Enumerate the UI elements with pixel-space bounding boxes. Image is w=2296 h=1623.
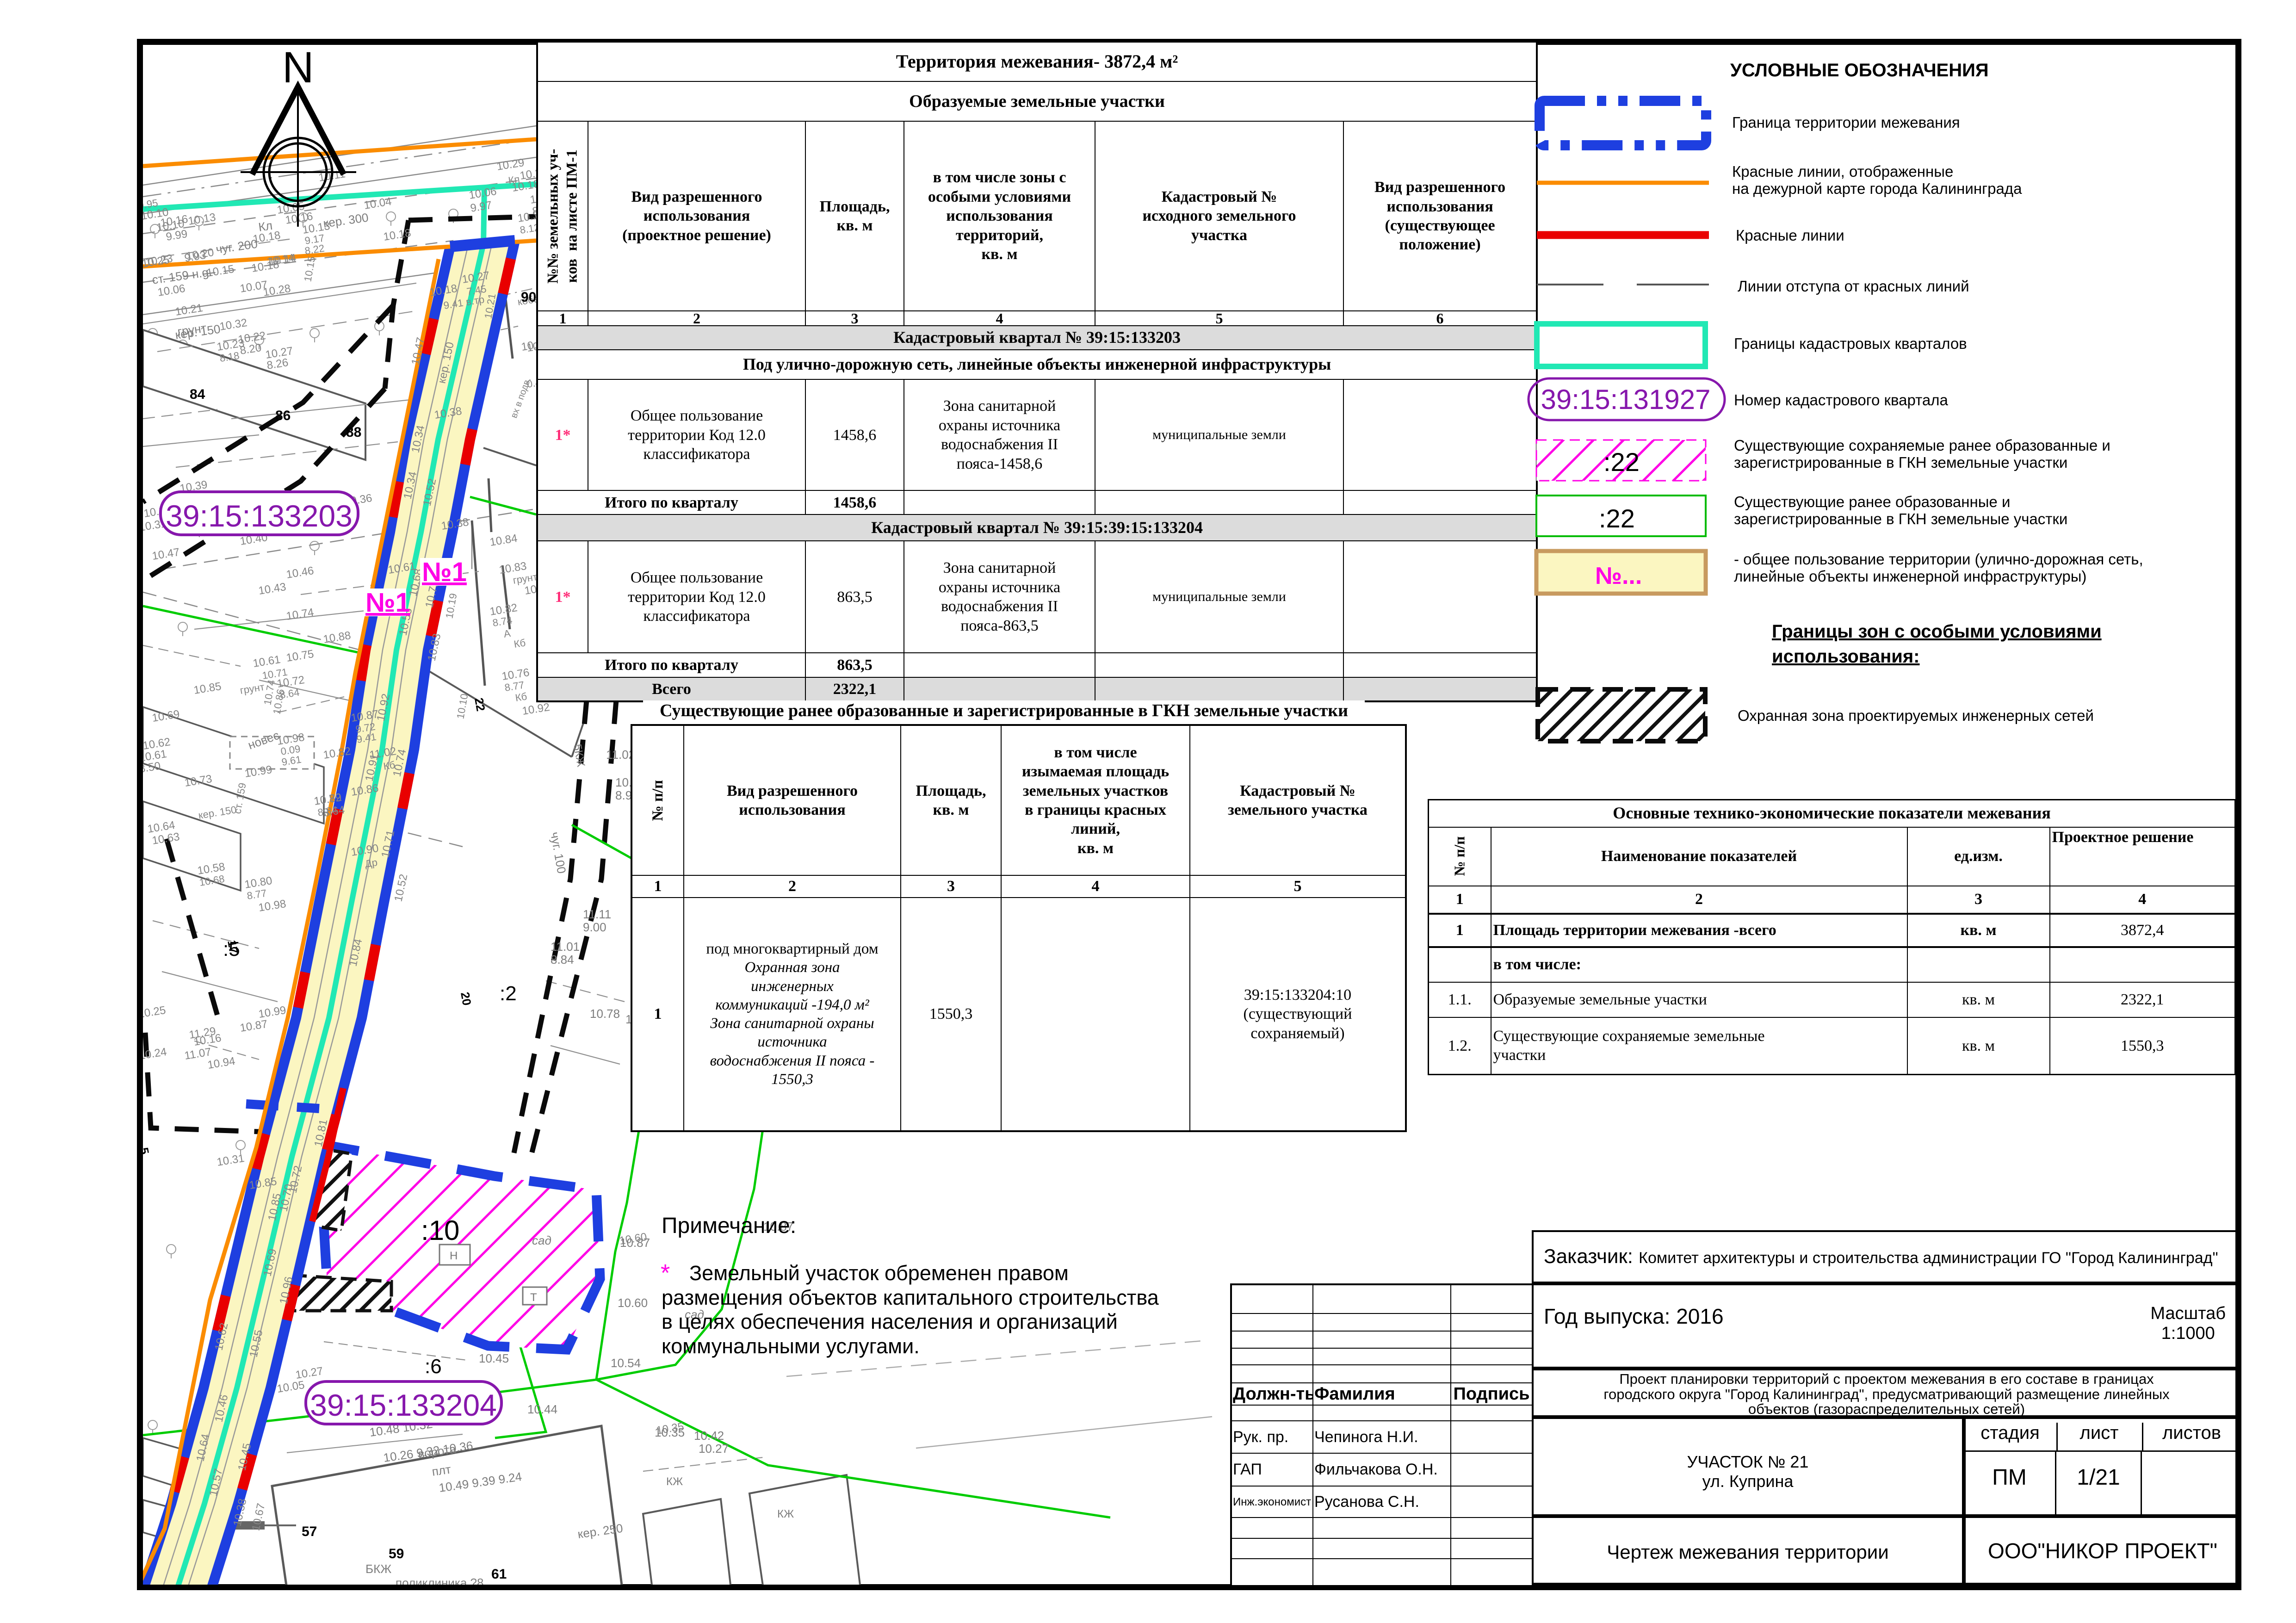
svg-text:11.01: 11.01: [551, 940, 580, 954]
svg-text:КЖ: КЖ: [666, 1475, 683, 1488]
svg-text:10.35: 10.35: [655, 1425, 685, 1439]
svg-text:20: 20: [458, 991, 474, 1007]
svg-text:№1: №1: [365, 588, 410, 618]
svg-text:10.85: 10.85: [193, 680, 223, 697]
svg-text:БКЖ: БКЖ: [365, 1562, 391, 1576]
svg-text:А: А: [503, 627, 512, 640]
svg-text:Кб: Кб: [514, 690, 528, 704]
svg-text:10.27: 10.27: [699, 1442, 729, 1456]
svg-text:10.19: 10.19: [443, 592, 459, 619]
svg-text:плт: плт: [431, 1462, 452, 1478]
svg-text:9.00: 9.00: [583, 920, 606, 934]
svg-text:10.54: 10.54: [611, 1356, 641, 1370]
svg-text:10.10: 10.10: [454, 693, 470, 720]
svg-text:Др: Др: [364, 856, 378, 870]
svg-text:8.84: 8.84: [551, 953, 574, 966]
svg-text:10.32: 10.32: [219, 316, 248, 333]
svg-text:86: 86: [275, 408, 291, 423]
svg-text:90: 90: [521, 290, 536, 305]
svg-text:10.52: 10.52: [392, 873, 410, 903]
svg-text:10.98: 10.98: [258, 898, 287, 914]
svg-text:Н: Н: [450, 1250, 458, 1262]
svg-text::5: :5: [223, 938, 240, 960]
svg-text:Кп: Кп: [507, 173, 520, 186]
svg-text::10: :10: [421, 1215, 459, 1246]
svg-text:8.50: 8.50: [138, 760, 161, 775]
svg-text:N: N: [282, 43, 314, 92]
svg-text::2: :2: [500, 982, 517, 1005]
svg-text:10.78: 10.78: [590, 1007, 620, 1021]
svg-text:10.99: 10.99: [258, 1004, 287, 1021]
svg-text:10.31: 10.31: [216, 1152, 246, 1169]
svg-text:кер. 150: кер. 150: [198, 804, 237, 821]
svg-text:10.47: 10.47: [151, 546, 181, 563]
svg-text:10.87: 10.87: [620, 1236, 650, 1250]
svg-text:10.74: 10.74: [285, 606, 315, 623]
svg-text:10.75: 10.75: [285, 648, 315, 664]
svg-text:поликлиника ?8: поликлиника ?8: [396, 1576, 483, 1590]
svg-text:чуг. 200: чуг. 200: [215, 237, 259, 256]
svg-text:9.97: 9.97: [470, 199, 493, 215]
svg-text:10.92: 10.92: [521, 701, 551, 718]
svg-text:10.87: 10.87: [239, 1018, 269, 1035]
svg-text::22: :22: [1599, 504, 1635, 533]
svg-text:вх в подв.: вх в подв.: [509, 376, 533, 420]
svg-text:10.42: 10.42: [694, 1429, 724, 1443]
svg-text:8.77: 8.77: [246, 887, 267, 902]
svg-text:10.25: 10.25: [137, 1004, 167, 1021]
svg-text:сад: сад: [532, 1233, 551, 1247]
svg-text:5: 5: [137, 1146, 152, 1155]
svg-text:10.05: 10.05: [276, 1379, 306, 1395]
svg-text:№1: №1: [422, 557, 467, 587]
svg-text:57: 57: [302, 1524, 317, 1539]
svg-text:59: 59: [389, 1546, 404, 1561]
svg-text:88: 88: [346, 425, 361, 440]
svg-text:грунт: грунт: [239, 681, 266, 696]
svg-text:22: 22: [472, 697, 488, 712]
svg-text:39:15:133204: 39:15:133204: [310, 1388, 497, 1422]
svg-text:10.24: 10.24: [138, 1046, 168, 1062]
svg-text:№...: №...: [1595, 563, 1642, 589]
svg-text:10.27: 10.27: [295, 1365, 324, 1381]
svg-text:10.13: 10.13: [187, 211, 217, 228]
svg-text:кер. 300: кер. 300: [322, 211, 370, 230]
svg-text:11.11: 11.11: [583, 907, 611, 921]
svg-text:84: 84: [190, 387, 205, 402]
svg-text:10.43: 10.43: [258, 581, 287, 597]
svg-text:39:15:133203: 39:15:133203: [166, 499, 353, 533]
svg-text::22: :22: [1603, 447, 1640, 477]
svg-text:10.84: 10.84: [489, 532, 519, 549]
svg-text:чуг. 100: чуг. 100: [548, 831, 569, 875]
svg-text:Кл: Кл: [258, 218, 273, 234]
svg-text:КЖ: КЖ: [777, 1508, 794, 1520]
svg-text:10.15: 10.15: [302, 255, 317, 283]
svg-text:Кб: Кб: [513, 637, 526, 650]
svg-text:10.14: 10.14: [266, 252, 296, 268]
svg-text:10.45: 10.45: [479, 1351, 509, 1365]
svg-text:39:15:131927: 39:15:131927: [1541, 384, 1710, 415]
svg-text:10.88: 10.88: [322, 629, 352, 646]
svg-text:10.04: 10.04: [363, 195, 393, 212]
svg-text:61: 61: [491, 1567, 507, 1582]
svg-text:10.44: 10.44: [527, 1402, 557, 1416]
svg-text:Т: Т: [530, 1291, 537, 1304]
svg-text:10.46: 10.46: [285, 564, 315, 581]
svg-text:10.60: 10.60: [618, 1296, 648, 1310]
svg-text::6: :6: [425, 1355, 442, 1378]
svg-text:10.18: 10.18: [383, 227, 412, 243]
svg-text:10.67: 10.67: [249, 1502, 267, 1532]
